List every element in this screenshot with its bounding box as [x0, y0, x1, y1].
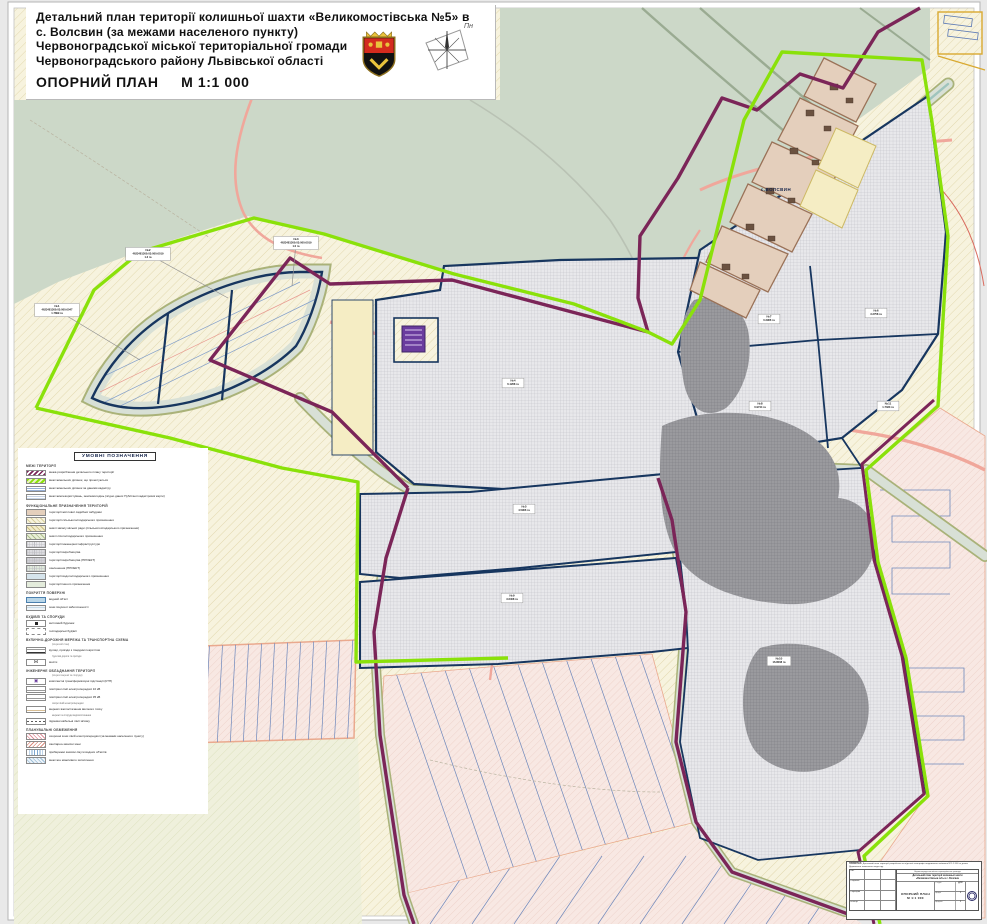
stamp-note-text: Детальний план території розроблено на п…	[849, 863, 968, 868]
legend-title: УМОВНІ ПОЗНАЧЕННЯ	[74, 452, 156, 461]
svg-text:№10: №10	[776, 657, 783, 661]
svg-text:3.6408 га: 3.6408 га	[506, 597, 518, 601]
seal-icon	[967, 891, 977, 901]
stamp-sheet-title: ОПОРНИЙ ПЛАН М 1:1 000	[897, 882, 935, 910]
settlement-label: с.ВОЛСВИН	[761, 187, 791, 192]
legend-item: межі землекористувань, землеволодінь (зг…	[26, 494, 204, 501]
svg-text:№6: №6	[873, 309, 878, 313]
legend-item-label: житловий будинок	[49, 622, 74, 625]
svg-text:№1: №1	[54, 304, 59, 308]
legend-section-header: ПЛАНУВАЛЬНІ ОБМЕЖЕННЯ	[26, 728, 204, 732]
legend-item: межа розроблення детального плану терито…	[26, 470, 204, 477]
parcel-label: №70.2966 га	[758, 314, 780, 324]
plan-sheet: с.ВОЛСВИН №14623481300:03:000:00471.7899…	[0, 0, 987, 924]
legend-item-label: зони існуючої заболоченості	[49, 606, 88, 609]
zone3-swatch-icon	[26, 749, 46, 756]
legend-item-label: повітряні лінії електропередачі 35 кВ	[49, 696, 100, 699]
parcel-label: №54.5906 га	[513, 504, 535, 514]
legend-item: повітряні лінії електропередачі 10 кВ	[26, 686, 204, 693]
grid-grey3-swatch-icon	[26, 557, 46, 564]
parcel-label: №80.9744 га	[749, 401, 771, 411]
legend-item: господарські будівлі	[26, 628, 204, 635]
legend-item-label: вулиці, проїзди з твердим покриттям	[49, 649, 100, 652]
legend-panel: УМОВНІ ПОЗНАЧЕННЯМЕЖІ ТЕРИТОРІЇмежа розр…	[18, 448, 208, 814]
stamp-note-title: ПРИМІТКА:	[849, 862, 862, 865]
legend-item-label: озеленення (ПРОЕКТ)	[49, 567, 80, 570]
legend-section-note: (існуючий стан)	[52, 643, 204, 646]
stamp-cells: СтадіяДПТ Аркуш1 Аркушів1	[935, 882, 966, 910]
stamp-sign-row: ГАП	[850, 870, 896, 880]
legend-item: підземні кабельні лінії зв'язку	[26, 718, 204, 725]
legend-item-label: господарські будівлі	[49, 630, 77, 633]
svg-text:6.1268 га: 6.1268 га	[507, 382, 519, 386]
hatch-yellow-swatch-icon	[26, 517, 46, 524]
legend-item: житловий будинок	[26, 620, 204, 627]
svg-text:№3: №3	[293, 237, 298, 241]
svg-text:№11: №11	[885, 402, 892, 406]
legend-section-header: БУДІВЛІ ТА СПОРУДИ	[26, 615, 204, 619]
legend-item: ▣комплектні трансформаторні підстанції (…	[26, 678, 204, 685]
legend-item: мережі газопостачання високого тиску	[26, 706, 204, 713]
legend-item-label: мережі газопостачання високого тиску	[49, 708, 102, 711]
bridge-swatch-icon: ⋈	[26, 659, 46, 666]
pale-green-swatch-icon	[26, 581, 46, 588]
svg-text:4.5906 га: 4.5906 га	[518, 508, 530, 512]
house-swatch-icon	[26, 620, 46, 627]
svg-text:1.7333 га: 1.7333 га	[882, 405, 894, 409]
stamp-table: ГАПРозробивПеревіривН.контр. Червоноград…	[849, 869, 979, 911]
plan-scale: М 1:1 000	[181, 74, 249, 90]
parcel-label: №46.1268 га	[502, 378, 524, 388]
legend-item: озеленення (ПРОЕКТ)	[26, 565, 204, 572]
legend-item-label: території інженерної інфраструктури	[49, 543, 100, 546]
maroon-hatch-swatch-icon	[26, 470, 46, 477]
legend-item-label: межі земельних ділянок, що проектуються	[49, 479, 108, 482]
legend-item: території сільськогосподарського признач…	[26, 517, 204, 524]
title-block: Детальний план території колишньої шахти…	[26, 5, 496, 100]
lep10-swatch-icon	[26, 686, 46, 693]
svg-text:16.8008 га: 16.8008 га	[772, 660, 786, 664]
svg-text:4623481300:03:000:0019: 4623481300:03:000:0019	[132, 251, 164, 255]
legend-item-label: території виробництва (ПРОЕКТ)	[49, 559, 95, 562]
hatch-olive-swatch-icon	[26, 525, 46, 532]
parcel-label: №1016.8008 га	[767, 656, 791, 666]
legend-item-label: комплектні трансформаторні підстанції (К…	[49, 680, 112, 683]
plan-title-line: Детальний план території колишньої шахти…	[36, 10, 487, 25]
water-swatch-icon	[26, 597, 46, 604]
legend-item-label: території іншого призначення	[49, 583, 90, 586]
comm-swatch-icon	[26, 718, 46, 725]
legend-section-header: МЕЖІ ТЕРИТОРІЇ	[26, 464, 204, 468]
ktp-swatch-icon: ▣	[26, 678, 46, 685]
legend-item: зони існуючої заболоченості	[26, 605, 204, 612]
legend-item: землі запасу міської ради (сільськогоспо…	[26, 525, 204, 532]
lep35-swatch-icon	[26, 694, 46, 701]
zone2-swatch-icon	[26, 741, 46, 748]
legend-item: водний об'єкт	[26, 597, 204, 604]
legend-item-label: прибережні захисні смуги водних об'єктів	[49, 751, 106, 754]
stamp-note: ПРИМІТКА: Детальний план території розро…	[849, 863, 979, 868]
svg-text:0.9744 га: 0.9744 га	[754, 405, 766, 409]
legend-item-label: підземні кабельні лінії зв'язку	[49, 720, 90, 723]
legend-item: території іншого призначення	[26, 581, 204, 588]
north-compass-icon	[418, 25, 474, 77]
gas-swatch-icon	[26, 706, 46, 713]
road-swatch-icon	[26, 647, 46, 654]
legend-item-label: землі лісогосподарського призначення	[49, 535, 103, 538]
legend-item: території виробництва (ПРОЕКТ)	[26, 557, 204, 564]
stamp-block: ПРИМІТКА: Детальний план території розро…	[846, 861, 982, 920]
stamp-sign-row: Розробив	[850, 880, 896, 890]
svg-text:4623481300:03:000:0019: 4623481300:03:000:0019	[280, 240, 312, 244]
hatch-green-swatch-icon	[26, 533, 46, 540]
legend-section-note: (існуючі мережі та споруди)	[52, 674, 204, 677]
legend-section-header: ФУНКЦІОНАЛЬНЕ ПРИЗНАЧЕННЯ ТЕРИТОРІЙ	[26, 504, 204, 508]
zone4-swatch-icon	[26, 757, 46, 764]
stamp-project: Детальний план території колишньої шахти…	[897, 874, 978, 882]
legend-item-label: території житлової садибної забудови	[49, 511, 102, 514]
parcel-label: №93.6408 га	[501, 593, 523, 603]
legend-item-label: межі земельних ділянок за даними кадастр…	[49, 487, 111, 490]
legend-item: повітряні лінії електропередачі 35 кВ	[26, 694, 204, 701]
legend-item-sublabel: опори ліній електропередачі	[52, 702, 204, 705]
legend-item: межі земельних ділянок, що проектуються	[26, 478, 204, 485]
legend-item: території житлової садибної забудови	[26, 509, 204, 516]
svg-text:№7: №7	[766, 315, 771, 319]
legend-item: прибережні захисні смуги водних об'єктів	[26, 749, 204, 756]
legend-item-sublabel: ґрунтові дороги та проїзди	[52, 655, 204, 658]
pale-blue-swatch-icon	[26, 573, 46, 580]
svg-text:1.0 га: 1.0 га	[292, 244, 300, 248]
legend-item: межі земельних ділянок за даними кадастр…	[26, 486, 204, 493]
plan-type-label: ОПОРНИЙ ПЛАН	[36, 74, 159, 90]
legend-item-label: межі землекористувань, землеволодінь (зг…	[49, 495, 165, 498]
svg-text:№2: №2	[145, 248, 150, 252]
svg-text:1.3 га: 1.3 га	[144, 255, 152, 259]
legend-item: санітарно-захисні зони	[26, 741, 204, 748]
legend-item-label: охоронні зони ліній електропередачі (за …	[49, 735, 144, 738]
legend-item-label: території водогосподарського призначення	[49, 575, 109, 578]
legend-item-label: межа розроблення детального плану терито…	[49, 471, 114, 474]
north-label: Пн	[464, 23, 473, 30]
legend-item-label: повітряні лінії електропередачі 10 кВ	[49, 688, 100, 691]
parcel-label: №63.2758 га	[865, 308, 887, 318]
legend-item-label: мости	[49, 661, 57, 664]
legend-item: території інженерної інфраструктури	[26, 541, 204, 548]
svg-text:№9: №9	[509, 594, 514, 598]
legend-item-sublabel: мережі та споруди водопостачання	[52, 714, 204, 717]
svg-text:№8: №8	[757, 402, 762, 406]
grid-grey-swatch-icon	[26, 541, 46, 548]
legend-item: межі зон можливого затоплення	[26, 757, 204, 764]
shed-swatch-icon	[26, 628, 46, 635]
legend-section-header: ІНЖЕНЕРНЕ ОБЛАДНАННЯ ТЕРИТОРІЇ	[26, 669, 204, 673]
legend-item: території виробництва	[26, 549, 204, 556]
swamp-swatch-icon	[26, 605, 46, 612]
legend-item-label: водний об'єкт	[49, 598, 68, 601]
blue-lines-swatch-icon	[26, 486, 46, 493]
svg-text:№4: №4	[510, 379, 515, 383]
legend-section-header: ВУЛИЧНО-ДОРОЖНЯ МЕРЕЖА ТА ТРАНСПОРТНА СХ…	[26, 638, 204, 642]
svg-text:№5: №5	[521, 505, 526, 509]
legend-item: вулиці, проїзди з твердим покриттям	[26, 647, 204, 654]
parcel-label: №111.7333 га	[877, 401, 899, 411]
stamp-signature-rows: ГАПРозробивПеревіривН.контр.	[850, 870, 897, 910]
legend-item-label: межі зон можливого затоплення	[49, 759, 94, 762]
cad-lines-swatch-icon	[26, 494, 46, 501]
stamp-seal	[966, 882, 978, 910]
legend-item-label: санітарно-захисні зони	[49, 743, 81, 746]
legend-item: території водогосподарського призначення	[26, 573, 204, 580]
svg-text:4623481300:03:000:0047: 4623481300:03:000:0047	[41, 307, 73, 311]
zone1-swatch-icon	[26, 733, 46, 740]
stamp-sign-row: Перевірив	[850, 891, 896, 901]
coat-of-arms-icon	[358, 27, 400, 79]
grid-grey2-swatch-icon	[26, 549, 46, 556]
legend-item-label: території виробництва	[49, 551, 80, 554]
tan-swatch-icon	[26, 509, 46, 516]
svg-text:0.2966 га: 0.2966 га	[763, 318, 775, 322]
legend-item-label: землі запасу міської ради (сільськогоспо…	[49, 527, 139, 530]
legend-item: ⋈мости	[26, 659, 204, 666]
legend-section-header: ПОКРИТТЯ ПОВЕРХНІ	[26, 591, 204, 595]
svg-text:1.7899 га: 1.7899 га	[51, 311, 63, 315]
legend-item-label: території сільськогосподарського признач…	[49, 519, 114, 522]
grid-green-swatch-icon	[26, 565, 46, 572]
svg-text:3.2758 га: 3.2758 га	[870, 312, 882, 316]
lime-swatch-icon	[26, 478, 46, 485]
legend-item: землі лісогосподарського призначення	[26, 533, 204, 540]
stamp-sign-row: Н.контр.	[850, 901, 896, 910]
legend-item: охоронні зони ліній електропередачі (за …	[26, 733, 204, 740]
